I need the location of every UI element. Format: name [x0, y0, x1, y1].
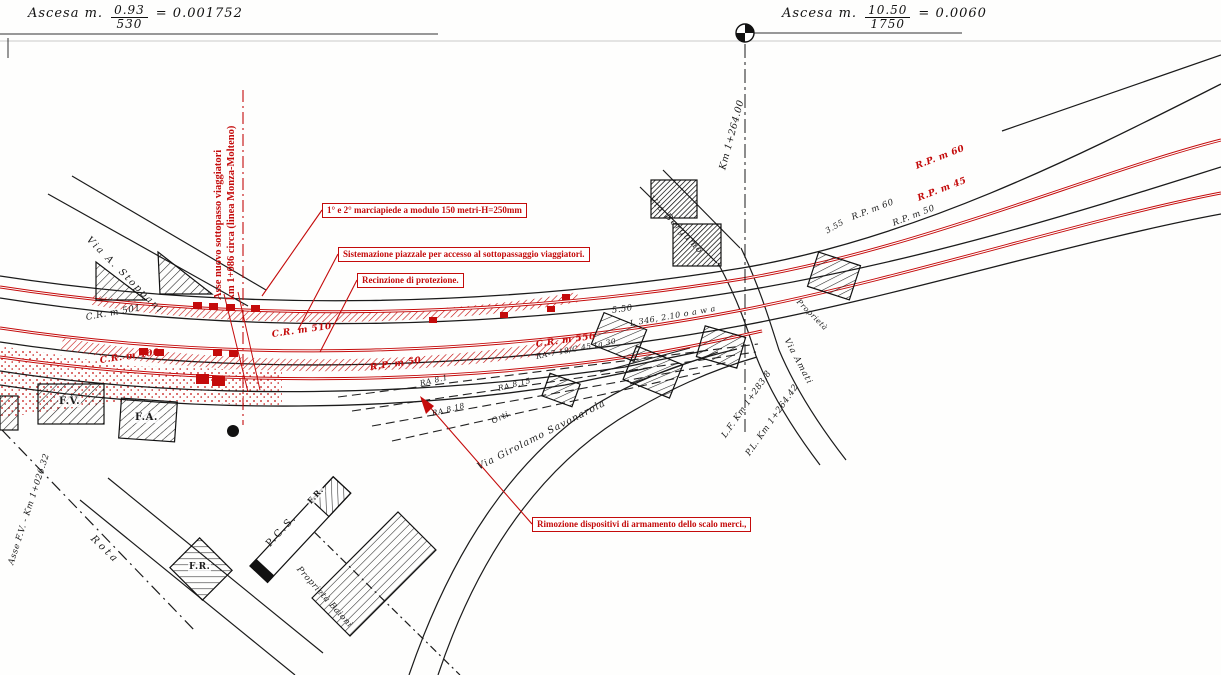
callout-fence: Recinzione di protezione. — [357, 273, 464, 288]
building-fr-label: F.R. — [188, 562, 211, 572]
ascesa-left-result: = 0.001752 — [156, 6, 243, 21]
underpass-axis-line2: km 1+086 circa (linea Monza-Molteno) — [225, 126, 238, 300]
benchmark-icon — [736, 24, 754, 42]
gradient-note-left: Ascesa m. 0.93 530 = 0.001752 — [28, 6, 243, 30]
underpass-axis-line1: Asse nuovo sottopasso viaggiatori — [212, 126, 225, 300]
ascesa-left-fraction: 0.93 530 — [111, 4, 148, 30]
building-fa-label: F.A. — [134, 412, 159, 423]
gradient-note-right: Ascesa m. 10.50 1750 = 0.0060 — [782, 6, 987, 30]
callout-piazzale: Sistemazione piazzale per accesso al sot… — [338, 247, 590, 262]
underpass-axis-label: Asse nuovo sottopasso viaggiatori km 1+0… — [212, 126, 238, 300]
ascesa-left-label: Ascesa m. — [28, 6, 103, 21]
callout-platforms: 1° e 2° marciapiede a modulo 150 metri-H… — [322, 203, 527, 218]
ascesa-right-result: = 0.0060 — [918, 6, 987, 21]
building-fv-label: F.V. — [58, 396, 81, 407]
callout-removal: Rimozione dispositivi di armamento dello… — [532, 517, 751, 532]
ascesa-right-label: Ascesa m. — [782, 6, 857, 21]
manhole-dot — [227, 425, 239, 437]
railway-plan-sheet: Ascesa m. 0.93 530 = 0.001752 Ascesa m. … — [0, 0, 1221, 675]
sheet-frame — [0, 33, 1221, 58]
ascesa-right-fraction: 10.50 1750 — [865, 4, 910, 30]
